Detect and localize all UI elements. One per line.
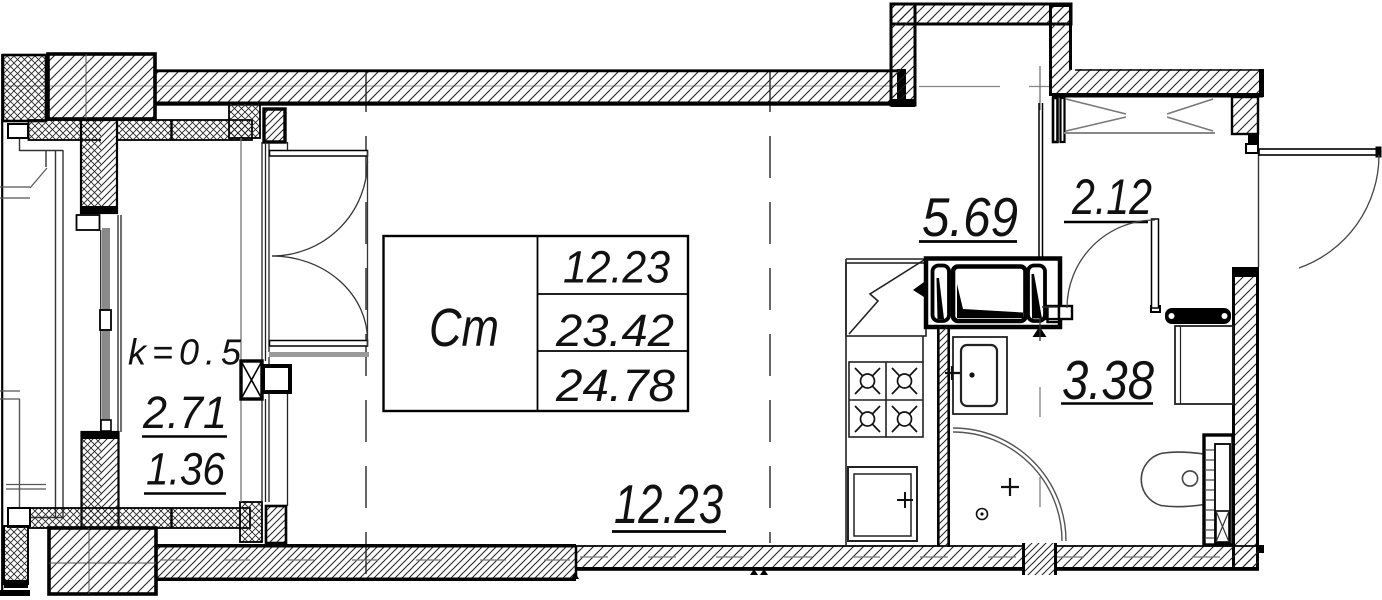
svg-text:Cm: Cm	[429, 298, 499, 358]
svg-text:24.78: 24.78	[555, 360, 675, 411]
svg-text:12.23: 12.23	[614, 473, 723, 535]
svg-text:23.42: 23.42	[555, 305, 674, 356]
svg-text:12.23: 12.23	[563, 242, 670, 293]
svg-text:2.12: 2.12	[1071, 169, 1152, 225]
svg-text:5.69: 5.69	[922, 186, 1018, 248]
svg-text:k=0.5: k=0.5	[128, 332, 242, 373]
svg-text:3.38: 3.38	[1062, 349, 1154, 411]
svg-text:2.71: 2.71	[142, 387, 227, 438]
svg-text:1.36: 1.36	[146, 444, 226, 495]
